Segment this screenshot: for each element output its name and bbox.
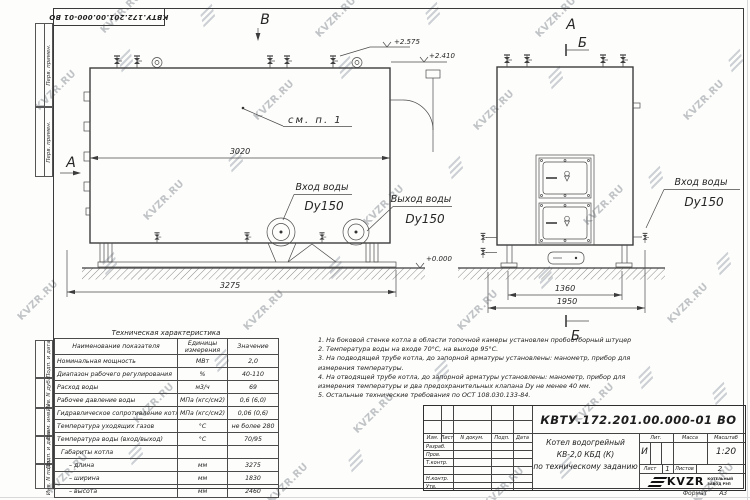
product-line-1: Котел водогрейный xyxy=(546,438,625,447)
margin-cell-podp-data-1: Подп. и дата xyxy=(35,340,53,378)
margin-divider xyxy=(44,465,45,488)
col-header-value: Значение xyxy=(228,339,279,355)
row-nkontr: Н.контр. xyxy=(426,476,448,482)
table-row: – высотамм2460 xyxy=(55,485,279,498)
sheet-label: Лист xyxy=(644,466,657,472)
table-row: Номинальная мощностьМВт2,0 xyxy=(55,355,279,368)
col-data: Дата xyxy=(516,435,529,441)
format-note: Формат А3 xyxy=(655,490,750,497)
note-line: 2. Температура воды на входе 70°С, на вы… xyxy=(318,345,744,354)
lit-value: И xyxy=(641,447,648,457)
note-line: измерения температуры и два предохраните… xyxy=(318,382,744,391)
inlet-dy-front: Dy150 xyxy=(684,195,724,209)
dim-1360: 1360 xyxy=(555,284,575,293)
support-frame xyxy=(98,243,396,267)
top-port-left xyxy=(152,58,162,68)
margin-divider xyxy=(44,341,45,377)
col-podp: Подп. xyxy=(494,435,509,441)
explosion-valve xyxy=(426,70,440,78)
product-line-3: по техническому заданию xyxy=(533,462,637,471)
inlet-label: Вход воды xyxy=(295,182,349,193)
logo-text: KVZR xyxy=(667,475,704,488)
top-port-right xyxy=(352,58,362,68)
water-inlet-flange xyxy=(267,218,295,246)
product-title: Котел водогрейный КВ-2,0 КБД (К) по техн… xyxy=(532,433,639,475)
note-line: 5. Остальные технические требования по О… xyxy=(318,391,744,400)
table-row: Габариты котла xyxy=(55,446,279,459)
table-row: – длинамм3275 xyxy=(55,459,279,472)
table-row: Температура воды (вход/выход)°С70/95 xyxy=(55,433,279,446)
ground-hatch-right xyxy=(458,269,665,280)
logo-subtext: КОТЕЛЬНЫЙ ЗАВОД РЭП xyxy=(707,477,733,485)
dim-1950: 1950 xyxy=(557,297,577,306)
technical-notes: 1. На боковой стенке котла в области топ… xyxy=(318,336,744,400)
inlet-dy: Dy150 xyxy=(304,199,344,213)
note-line: измерения температуры. xyxy=(318,364,744,373)
col-header-name: Наименование показателя xyxy=(55,339,178,355)
outlet-label: Выход воды xyxy=(391,194,452,205)
coil-icon xyxy=(647,477,667,487)
note-line: 3. На подводящей трубе котла, до запорно… xyxy=(318,354,744,363)
dim-3020: 3020 xyxy=(230,147,250,156)
view-mark-b: В xyxy=(260,12,270,28)
table-row: Температура уходящих газов°Сне более 280 xyxy=(55,420,279,433)
front-view: Вход воды Dy150 1360 1950 А Б Б xyxy=(458,17,740,344)
title-block: Изм. Лист N докум. Подп. Дата Разраб. Пр… xyxy=(423,405,746,491)
scale-value: 1:20 xyxy=(716,447,736,457)
dim-3275: 3275 xyxy=(220,281,240,290)
row-tkontr: Т.контр. xyxy=(426,460,448,466)
tech-table-title: Техническая характеристика xyxy=(54,329,278,337)
product-line-2: КВ-2,0 КБД (К) xyxy=(557,450,614,459)
margin-label: Подп. и дата xyxy=(46,340,52,377)
note-line: 1. На боковой стенке котла в области топ… xyxy=(318,336,744,345)
furnace-doors xyxy=(536,155,594,245)
front-view-mark-a: А xyxy=(565,17,576,33)
sheets-label: Листов xyxy=(675,466,694,472)
margin-cell-inv-podl: Инв. N подл. xyxy=(35,464,53,489)
level-zero: +0.000 xyxy=(426,255,452,263)
note-line: 4. На отводящей трубе котла, до запорной… xyxy=(318,373,744,382)
row-razrab: Разраб. xyxy=(426,444,446,450)
table-row: – ширинамм1830 xyxy=(55,472,279,485)
row-prov: Пров. xyxy=(426,452,441,458)
margin-divider xyxy=(44,379,45,407)
row-utv: Утв. xyxy=(426,484,437,490)
section-mark-b-top: Б xyxy=(578,36,587,51)
tech-table-header-row: Наименование показателя Единицы измерени… xyxy=(55,339,279,355)
col-izm: Изм. xyxy=(427,435,439,441)
format-value: А3 xyxy=(719,490,727,497)
margin-divider xyxy=(44,409,45,435)
sheets-value: 2 xyxy=(718,465,722,473)
see-note-callout: см. п. 1 xyxy=(288,115,343,126)
drawing-sheet: KVZR.RUKVZR.RUKVZR.RUKVZR.RUKVZR.RUKVZR.… xyxy=(0,0,750,500)
ground-hatch-left xyxy=(82,269,425,280)
doc-number: КВТУ.172.201.00.000-01 ВО xyxy=(532,406,745,433)
tech-table: Наименование показателя Единицы измерени… xyxy=(54,338,279,498)
format-label: Формат xyxy=(683,490,707,497)
table-row: Расход водым3/ч69 xyxy=(55,381,279,394)
margin-label: Инв. N подл. xyxy=(46,458,52,494)
level-2575: +2.575 xyxy=(394,38,420,46)
table-row: Диапазон рабочего регулирования%40-110 xyxy=(55,368,279,381)
scale-label: Масштаб xyxy=(714,435,738,441)
table-row: Гидравлическое сопротивление котлаМПа (к… xyxy=(55,407,279,420)
col-header-units: Единицы измерения xyxy=(178,339,228,355)
lit-label: Лит. xyxy=(650,435,662,441)
inlet-label-front: Вход воды xyxy=(674,177,728,188)
sheet-value: 1 xyxy=(665,465,669,473)
margin-divider xyxy=(44,437,45,463)
level-2410: +2.410 xyxy=(429,52,455,60)
boiler-drawing: 3020 см. п. 1 xyxy=(0,0,750,345)
view-mark-a: А xyxy=(65,155,76,171)
col-list: Лист xyxy=(441,435,454,441)
col-doc: N докум. xyxy=(460,435,483,441)
company-logo: KVZR КОТЕЛЬНЫЙ ЗАВОД РЭП xyxy=(639,473,745,490)
water-outlet-flange xyxy=(343,219,369,245)
table-row: Рабочее давление водыМПа (кгс/см2)0,6 (6… xyxy=(55,394,279,407)
outlet-dy: Dy150 xyxy=(405,212,445,226)
side-view: 3020 см. п. 1 xyxy=(60,12,455,297)
mass-label: Масса xyxy=(682,435,698,441)
